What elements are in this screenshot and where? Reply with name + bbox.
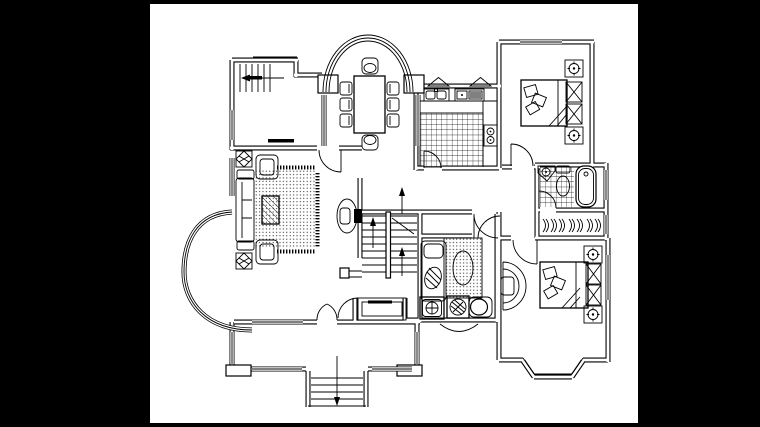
arch-pier-left (318, 75, 338, 93)
stair-newel (340, 268, 349, 278)
floor-plan-drawing (0, 0, 760, 427)
stair-stringer (386, 212, 391, 278)
tv-screen (354, 209, 362, 223)
floor-plan-stage (0, 0, 760, 427)
coffee-table (262, 196, 279, 224)
study-rug (444, 238, 482, 298)
kitchen-tile-floor (420, 113, 483, 167)
stair-rail-mark (250, 76, 262, 80)
terrace-post-left (226, 365, 251, 376)
sliding-door-panel (268, 139, 294, 143)
